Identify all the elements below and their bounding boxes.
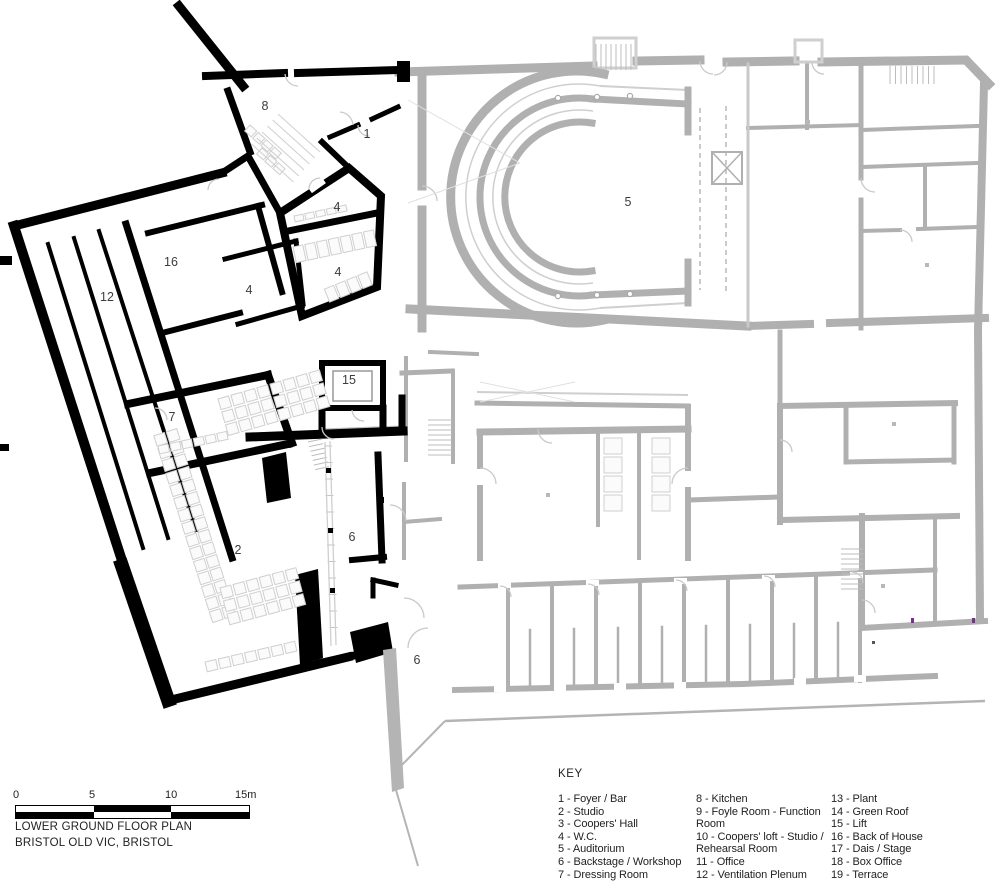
- key-item: 7 - Dressing Room: [558, 869, 696, 882]
- auditorium-horseshoe: [451, 71, 742, 323]
- key-item: 9 - Foyle Room - Function Room: [696, 806, 831, 831]
- key-item: 16 - Back of House: [831, 831, 951, 844]
- plan-subtitle: BRISTOL OLD VIC, BRISTOL: [15, 836, 192, 852]
- studio-seating-bottom: [220, 568, 306, 625]
- door-marker-accent: [911, 618, 914, 623]
- wc-cubicles: [652, 438, 670, 511]
- scale-tick: 15m: [235, 789, 256, 801]
- key-item: 2 - Studio: [558, 806, 696, 819]
- wc-cubicles: [293, 230, 377, 263]
- key-legend: KEY 1 - Foyer / Bar2 - Studio3 - Coopers…: [558, 768, 994, 881]
- key-column-3: 13 - Plant14 - Green Roof15 - Lift16 - B…: [831, 793, 951, 881]
- floor-plan-svg: [0, 0, 1000, 886]
- key-item: 13 - Plant: [831, 793, 951, 806]
- scale-tick: 10: [165, 789, 177, 801]
- key-item: 1 - Foyer / Bar: [558, 793, 696, 806]
- scale-tick: 5: [89, 789, 95, 801]
- key-item: 11 - Office: [696, 856, 831, 869]
- key-item: 6 - Backstage / Workshop: [558, 856, 696, 869]
- key-heading: KEY: [558, 768, 994, 780]
- key-item: 4 - W.C.: [558, 831, 696, 844]
- plan-markers: [546, 120, 975, 644]
- stage-dashed-lines: [700, 106, 726, 292]
- historic-theatre-walls: [322, 38, 989, 692]
- lift-car: [333, 371, 372, 401]
- furniture: [154, 125, 670, 672]
- door-marker-accent: [972, 618, 975, 623]
- key-item: 15 - Lift: [831, 818, 951, 831]
- key-item: 17 - Dais / Stage: [831, 843, 951, 856]
- floor-plan-canvas: 1244456678121516 051015m LOWER GROUND FL…: [0, 0, 1000, 886]
- stage-lift-box: [712, 152, 742, 184]
- scale-tick: 0: [13, 789, 19, 801]
- key-item: 10 - Coopers' loft - Studio / Rehearsal …: [696, 831, 831, 856]
- key-item: 19 - Terrace: [831, 869, 951, 882]
- key-columns: 1 - Foyer / Bar2 - Studio3 - Coopers' Ha…: [558, 793, 994, 881]
- key-item: 14 - Green Roof: [831, 806, 951, 819]
- key-item: 18 - Box Office: [831, 856, 951, 869]
- plan-title: LOWER GROUND FLOOR PLAN: [15, 820, 192, 836]
- key-column-1: 1 - Foyer / Bar2 - Studio3 - Coopers' Ha…: [558, 793, 696, 881]
- title-block: LOWER GROUND FLOOR PLAN BRISTOL OLD VIC,…: [15, 820, 192, 851]
- scale-tick-labels: 051015m: [13, 789, 273, 803]
- studio-seating-row: [205, 641, 297, 671]
- scale-bar: 051015m: [13, 789, 273, 819]
- key-column-2: 8 - Kitchen9 - Foyle Room - Function Roo…: [696, 793, 831, 881]
- key-item: 12 - Ventilation Plenum: [696, 869, 831, 882]
- key-item: 5 - Auditorium: [558, 843, 696, 856]
- wc-cubicles: [604, 438, 622, 511]
- scale-bar-graphic: [15, 805, 250, 819]
- key-item: 3 - Coopers' Hall: [558, 818, 696, 831]
- key-item: 8 - Kitchen: [696, 793, 831, 806]
